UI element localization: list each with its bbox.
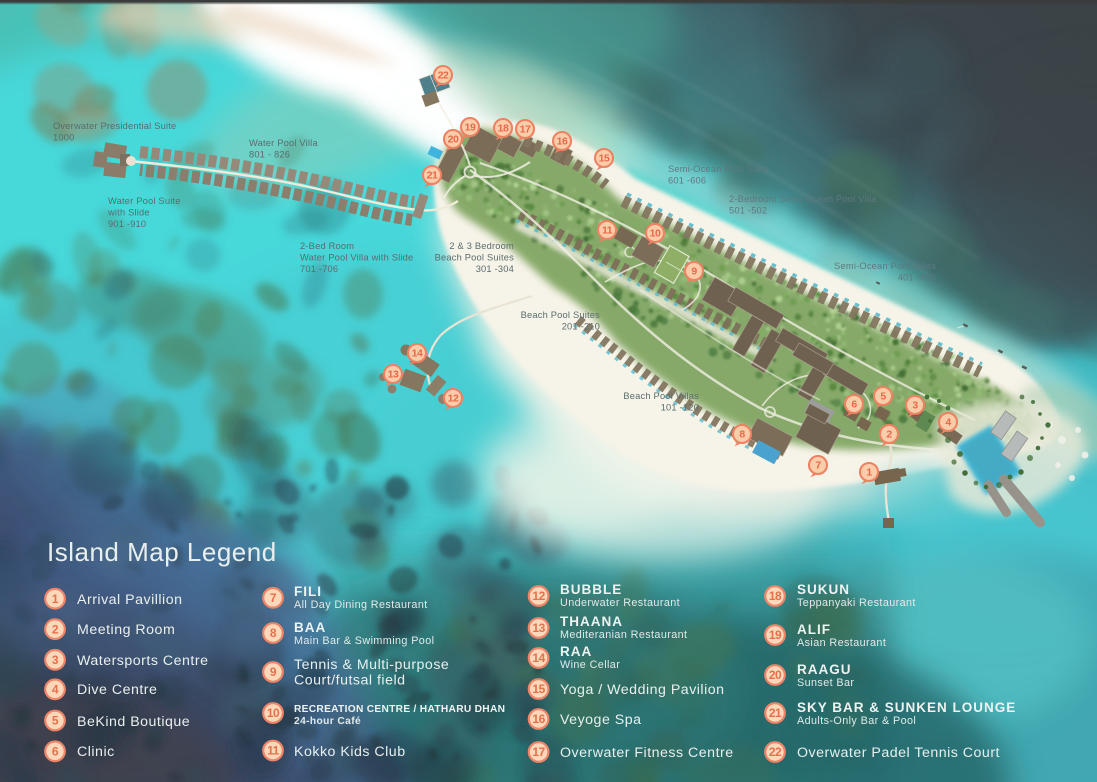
- svg-text:Underwater Restaurant: Underwater Restaurant: [560, 597, 680, 609]
- svg-text:22: 22: [438, 70, 449, 82]
- svg-text:18: 18: [769, 589, 782, 603]
- svg-text:Mediteranian Restaurant: Mediteranian Restaurant: [560, 629, 687, 641]
- svg-text:12: 12: [448, 393, 459, 405]
- svg-text:Teppanyaki Restaurant: Teppanyaki Restaurant: [797, 597, 916, 609]
- svg-text:7: 7: [270, 591, 277, 605]
- svg-text:12: 12: [532, 589, 545, 603]
- svg-text:11: 11: [602, 225, 613, 237]
- svg-text:Main Bar & Swimming Pool: Main Bar & Swimming Pool: [294, 635, 434, 647]
- svg-text:Clinic: Clinic: [77, 744, 115, 760]
- svg-text:Tennis & Multi-purpose: Tennis & Multi-purpose: [294, 657, 449, 673]
- svg-text:Arrival Pavillion: Arrival Pavillion: [77, 592, 182, 608]
- svg-text:5: 5: [52, 714, 59, 728]
- svg-text:4: 4: [945, 417, 951, 429]
- svg-text:2: 2: [886, 429, 892, 441]
- svg-text:1: 1: [866, 467, 872, 479]
- svg-text:13: 13: [388, 369, 399, 381]
- svg-text:Sunset Bar: Sunset Bar: [797, 677, 854, 689]
- svg-text:2: 2: [52, 622, 59, 636]
- svg-text:BeKind Boutique: BeKind Boutique: [77, 714, 190, 730]
- svg-text:13: 13: [532, 621, 545, 635]
- svg-text:Dive Centre: Dive Centre: [77, 682, 157, 698]
- svg-text:20: 20: [769, 668, 782, 682]
- svg-text:14: 14: [412, 348, 423, 360]
- svg-text:6: 6: [52, 745, 59, 759]
- svg-text:BUBBLE: BUBBLE: [560, 582, 622, 597]
- svg-text:5: 5: [880, 391, 886, 403]
- svg-text:Overwater Fitness Centre: Overwater Fitness Centre: [560, 745, 734, 761]
- svg-text:RECREATION CENTRE / HATHARU DH: RECREATION CENTRE / HATHARU DHAN: [294, 704, 505, 715]
- svg-text:9: 9: [270, 665, 277, 679]
- svg-text:SKY BAR & SUNKEN LOUNGE: SKY BAR & SUNKEN LOUNGE: [797, 700, 1016, 715]
- svg-text:17: 17: [532, 745, 545, 759]
- svg-text:Wine Cellar: Wine Cellar: [560, 659, 620, 671]
- svg-text:15: 15: [532, 682, 545, 696]
- svg-text:RAAGU: RAAGU: [797, 662, 852, 677]
- svg-text:19: 19: [769, 628, 782, 642]
- svg-text:ALIF: ALIF: [797, 622, 831, 637]
- svg-text:24-hour Café: 24-hour Café: [294, 716, 361, 727]
- svg-text:16: 16: [532, 712, 545, 726]
- svg-text:1: 1: [52, 592, 59, 606]
- svg-text:21: 21: [427, 170, 438, 182]
- svg-text:19: 19: [465, 122, 476, 134]
- svg-text:20: 20: [448, 134, 459, 146]
- svg-text:3: 3: [912, 400, 918, 412]
- svg-text:3: 3: [52, 653, 59, 667]
- svg-text:Court/futsal field: Court/futsal field: [294, 673, 406, 689]
- svg-text:14: 14: [532, 651, 545, 665]
- svg-text:17: 17: [520, 124, 531, 136]
- svg-text:7: 7: [815, 460, 821, 472]
- svg-text:10: 10: [267, 706, 280, 720]
- svg-text:Kokko Kids Club: Kokko Kids Club: [294, 744, 406, 760]
- svg-text:8: 8: [270, 626, 277, 640]
- svg-text:SUKUN: SUKUN: [797, 582, 850, 597]
- svg-text:Veyoge Spa: Veyoge Spa: [560, 712, 642, 728]
- svg-text:10: 10: [650, 228, 661, 240]
- svg-text:11: 11: [267, 744, 280, 758]
- svg-text:Meeting Room: Meeting Room: [77, 622, 175, 638]
- svg-text:THAANA: THAANA: [560, 614, 623, 629]
- svg-text:22: 22: [769, 745, 782, 759]
- svg-text:Overwater Padel Tennis Court: Overwater Padel Tennis Court: [797, 745, 1000, 761]
- svg-text:15: 15: [599, 153, 610, 165]
- svg-text:18: 18: [498, 123, 509, 135]
- svg-text:RAA: RAA: [560, 644, 592, 659]
- svg-text:21: 21: [769, 706, 782, 720]
- svg-text:Yoga / Wedding Pavilion: Yoga / Wedding Pavilion: [560, 682, 725, 698]
- svg-text:16: 16: [557, 136, 568, 148]
- svg-text:All Day Dining Restaurant: All Day Dining Restaurant: [294, 599, 428, 611]
- svg-text:BAA: BAA: [294, 620, 326, 635]
- svg-text:Island Map Legend: Island Map Legend: [47, 537, 277, 567]
- svg-text:9: 9: [691, 266, 697, 278]
- svg-text:Asian Restaurant: Asian Restaurant: [797, 637, 886, 649]
- svg-text:FILI: FILI: [294, 584, 322, 599]
- svg-text:Watersports Centre: Watersports Centre: [77, 653, 208, 669]
- svg-text:Adults-Only Bar & Pool: Adults-Only Bar & Pool: [797, 715, 916, 727]
- svg-text:6: 6: [851, 399, 857, 411]
- svg-text:8: 8: [739, 429, 745, 441]
- svg-text:4: 4: [52, 683, 59, 697]
